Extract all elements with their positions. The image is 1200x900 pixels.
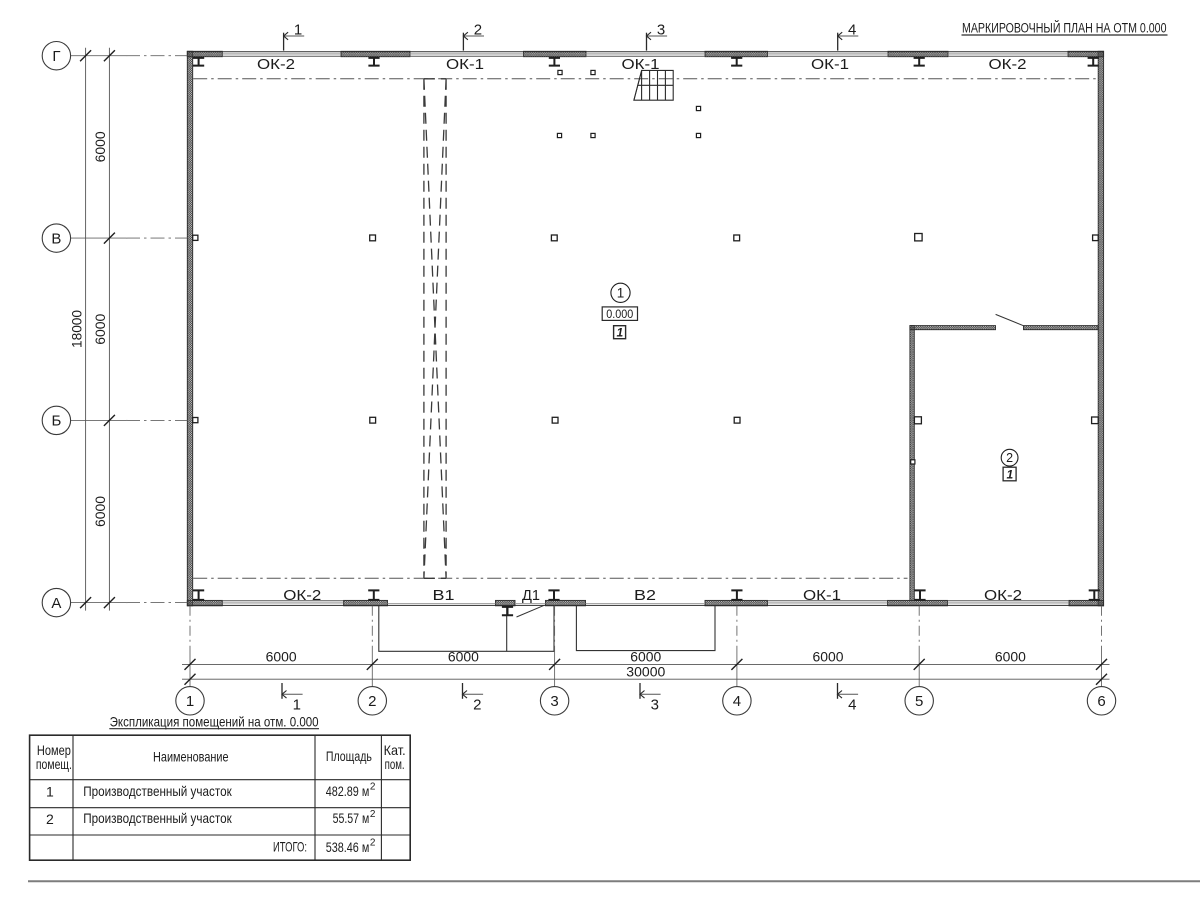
svg-text:6000: 6000 bbox=[266, 650, 297, 665]
svg-text:ОК-1: ОК-1 bbox=[446, 57, 484, 73]
svg-text:ОК-2: ОК-2 bbox=[984, 588, 1022, 604]
svg-text:ОК-1: ОК-1 bbox=[811, 57, 849, 73]
svg-text:55.57 м: 55.57 м bbox=[333, 810, 370, 826]
svg-text:1: 1 bbox=[186, 693, 194, 710]
svg-text:6000: 6000 bbox=[630, 650, 661, 665]
svg-text:В: В bbox=[51, 230, 61, 247]
svg-text:ОК-2: ОК-2 bbox=[257, 57, 295, 73]
svg-text:1: 1 bbox=[616, 325, 623, 339]
svg-text:пом.: пом. bbox=[385, 756, 405, 772]
svg-text:2: 2 bbox=[370, 838, 376, 849]
svg-text:1: 1 bbox=[294, 21, 302, 38]
svg-text:538.46 м: 538.46 м bbox=[326, 839, 370, 855]
svg-text:4: 4 bbox=[733, 693, 741, 710]
svg-text:Наименование: Наименование bbox=[153, 749, 229, 765]
svg-text:1: 1 bbox=[1006, 467, 1013, 481]
svg-text:6000: 6000 bbox=[93, 314, 108, 345]
svg-text:2: 2 bbox=[368, 693, 376, 710]
svg-text:помещ.: помещ. bbox=[36, 756, 72, 772]
svg-text:Производственный участок: Производственный участок bbox=[83, 783, 232, 799]
svg-text:6000: 6000 bbox=[813, 650, 844, 665]
svg-text:Б: Б bbox=[51, 413, 61, 430]
svg-text:Экспликация помещений на отм.: Экспликация помещений на отм. 0.000 bbox=[110, 713, 319, 729]
svg-text:А: А bbox=[51, 595, 61, 612]
svg-text:4: 4 bbox=[848, 697, 856, 714]
svg-text:1: 1 bbox=[617, 286, 625, 301]
svg-text:ОК-2: ОК-2 bbox=[283, 588, 321, 604]
svg-text:ИТОГО:: ИТОГО: bbox=[273, 839, 307, 855]
svg-text:6000: 6000 bbox=[448, 650, 479, 665]
svg-text:2: 2 bbox=[1006, 451, 1013, 465]
svg-text:3: 3 bbox=[657, 21, 665, 38]
svg-text:4: 4 bbox=[848, 21, 856, 38]
svg-text:ОК-1: ОК-1 bbox=[803, 588, 841, 604]
svg-text:2: 2 bbox=[473, 697, 481, 714]
svg-text:0.000: 0.000 bbox=[606, 309, 633, 321]
svg-text:2: 2 bbox=[370, 782, 376, 793]
svg-text:2: 2 bbox=[46, 811, 54, 827]
svg-text:5: 5 bbox=[915, 693, 923, 710]
svg-text:6: 6 bbox=[1097, 693, 1105, 710]
svg-text:482.89 м: 482.89 м bbox=[326, 783, 370, 799]
svg-text:1: 1 bbox=[46, 784, 54, 800]
svg-text:2: 2 bbox=[474, 21, 482, 38]
svg-text:6000: 6000 bbox=[93, 496, 108, 527]
svg-text:Г: Г bbox=[52, 48, 60, 65]
svg-text:6000: 6000 bbox=[93, 131, 108, 162]
svg-text:В1: В1 bbox=[433, 588, 455, 604]
svg-text:Производственный участок: Производственный участок bbox=[83, 810, 232, 826]
svg-text:Площадь: Площадь bbox=[326, 748, 372, 764]
svg-text:2: 2 bbox=[370, 809, 376, 820]
svg-text:18000: 18000 bbox=[70, 310, 85, 348]
svg-text:МАРКИРОВОЧНЫЙ ПЛАН НА ОТМ 0.00: МАРКИРОВОЧНЫЙ ПЛАН НА ОТМ 0.000 bbox=[962, 18, 1167, 36]
svg-text:Д1: Д1 bbox=[522, 588, 540, 604]
svg-text:3: 3 bbox=[550, 693, 558, 710]
svg-text:В2: В2 bbox=[634, 588, 656, 604]
svg-text:1: 1 bbox=[293, 697, 301, 714]
svg-text:ОК-2: ОК-2 bbox=[989, 57, 1027, 73]
svg-text:6000: 6000 bbox=[995, 650, 1026, 665]
svg-text:30000: 30000 bbox=[626, 664, 665, 679]
svg-text:3: 3 bbox=[651, 697, 659, 714]
